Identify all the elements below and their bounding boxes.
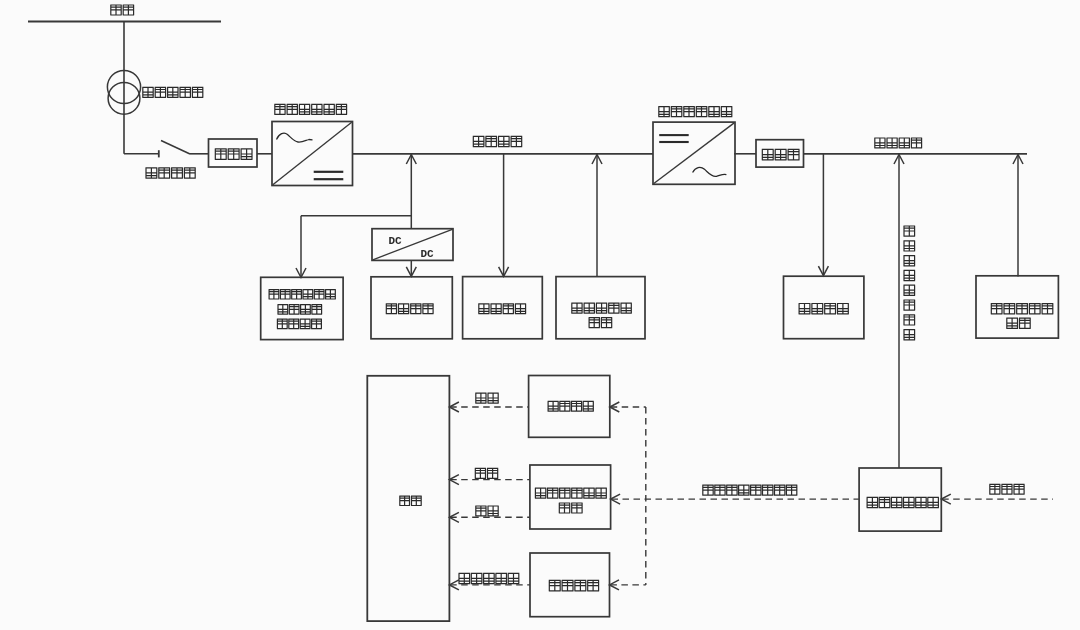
svg-text:DC: DC — [421, 248, 435, 260]
svg-text:DC: DC — [389, 235, 403, 247]
